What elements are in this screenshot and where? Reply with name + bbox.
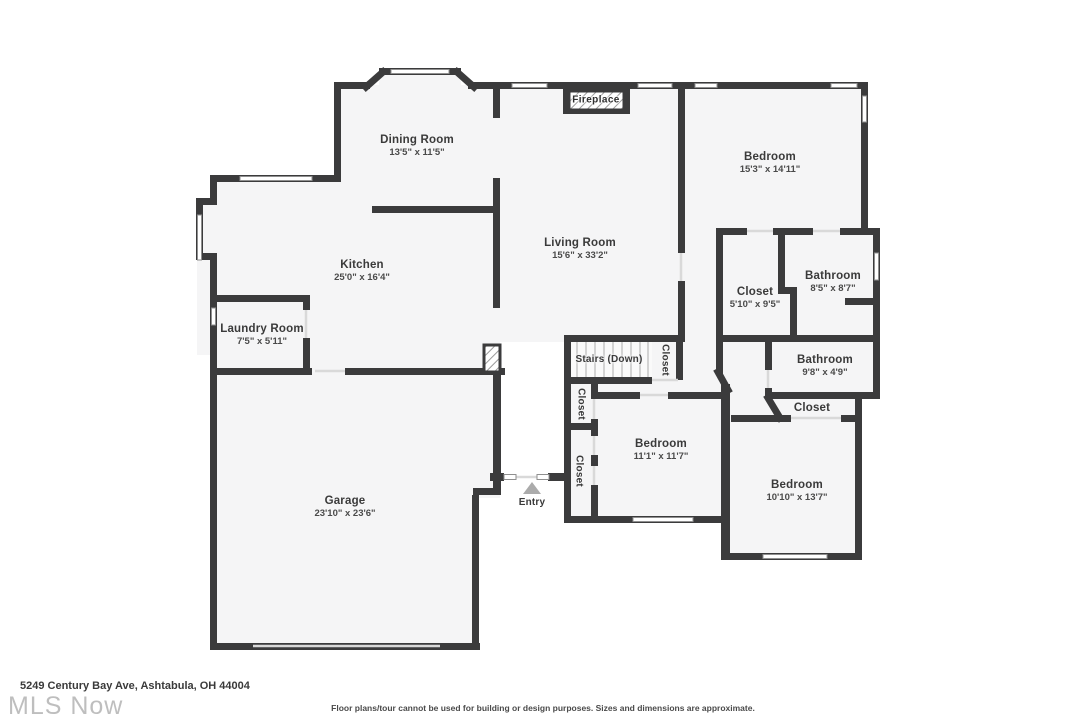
property-address: 5249 Century Bay Ave, Ashtabula, OH 4400… xyxy=(20,680,250,692)
disclaimer-text: Floor plans/tour cannot be used for buil… xyxy=(0,703,1086,713)
fireplace-label: Fireplace xyxy=(572,95,620,106)
floor-plan: Dining Room 13'5" x 11'5" Kitchen 25'0" … xyxy=(0,0,1086,724)
floorplan-drawing xyxy=(0,0,1086,724)
entry-arrow-icon xyxy=(523,482,541,494)
